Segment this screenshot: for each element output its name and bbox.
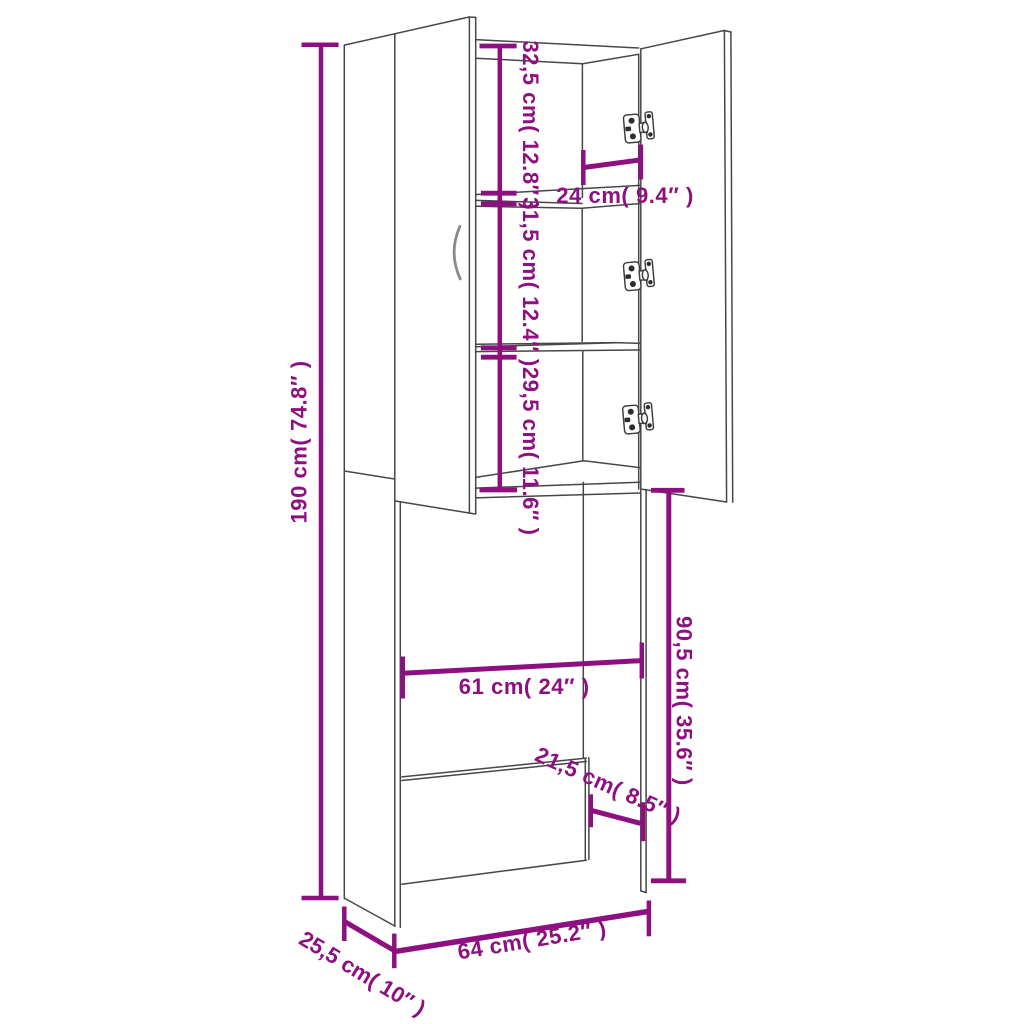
svg-text:29,5 cm( 11.6″ ): 29,5 cm( 11.6″ ) <box>518 367 543 536</box>
svg-text:61 cm( 24″ ): 61 cm( 24″ ) <box>459 674 590 699</box>
svg-text:31,5 cm( 12.4″ ): 31,5 cm( 12.4″ ) <box>518 197 543 367</box>
svg-text:32,5 cm( 12.8″ ): 32,5 cm( 12.8″ ) <box>518 41 543 211</box>
svg-text:190 cm( 74.8″ ): 190 cm( 74.8″ ) <box>287 360 312 523</box>
svg-text:90,5 cm( 35.6″ ): 90,5 cm( 35.6″ ) <box>672 616 697 786</box>
svg-text:24 cm( 9.4″ ): 24 cm( 9.4″ ) <box>556 183 694 208</box>
